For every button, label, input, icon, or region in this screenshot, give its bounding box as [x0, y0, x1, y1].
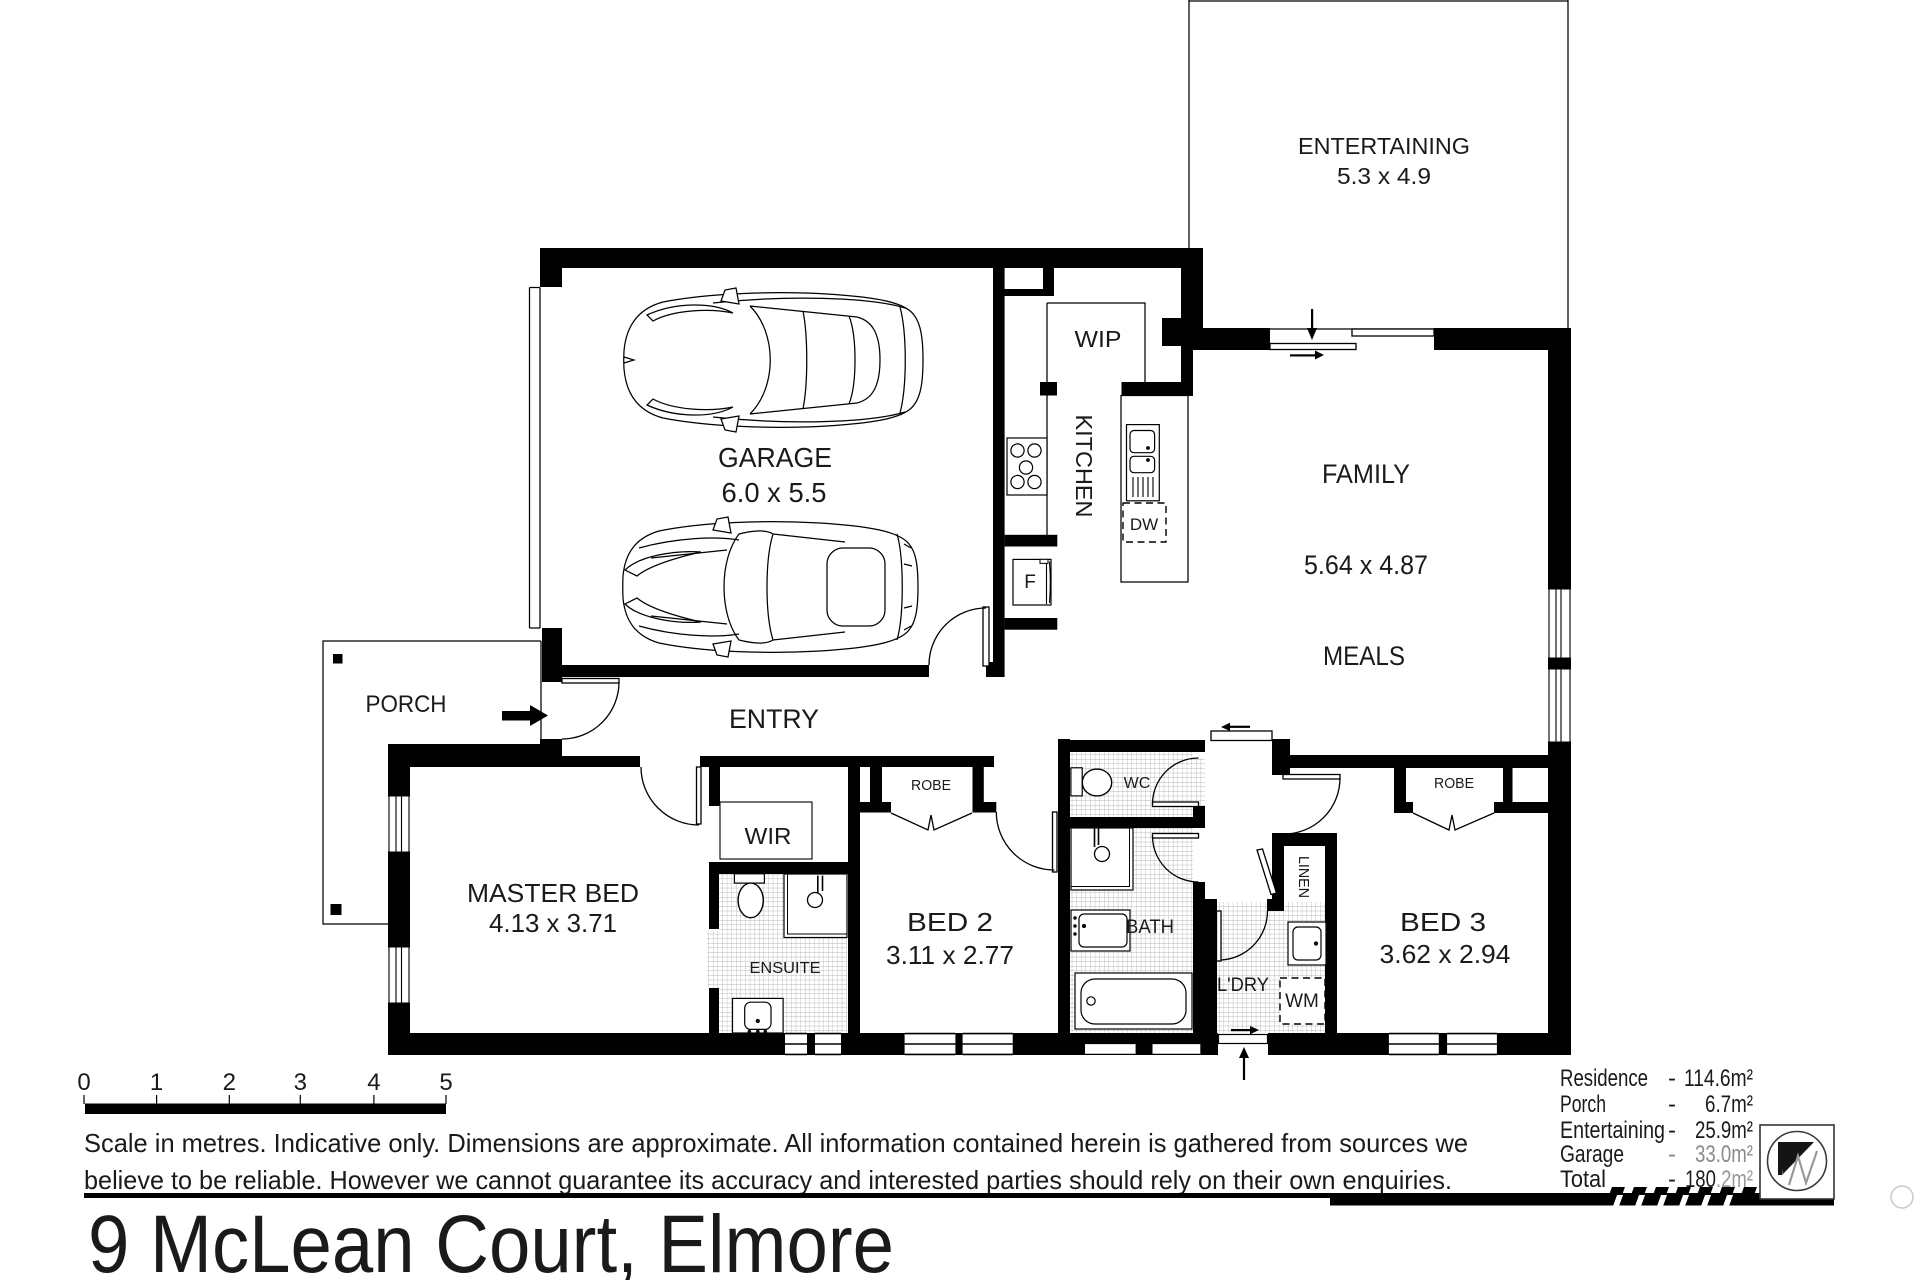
svg-text:WC: WC [1124, 775, 1151, 792]
svg-text:DW: DW [1130, 515, 1158, 534]
svg-text:KITCHEN: KITCHEN [1071, 415, 1097, 518]
svg-text:33.0m²: 33.0m² [1695, 1141, 1753, 1168]
svg-text:3.62 x 2.94: 3.62 x 2.94 [1380, 939, 1511, 969]
svg-text:LINEN: LINEN [1295, 856, 1312, 898]
svg-text:ENTRY: ENTRY [729, 704, 819, 734]
svg-text:GARAGE: GARAGE [718, 442, 832, 473]
svg-text:FAMILY: FAMILY [1322, 459, 1410, 489]
svg-text:9 McLean Court, Elmore: 9 McLean Court, Elmore [88, 1199, 894, 1280]
svg-text:F: F [1024, 572, 1036, 593]
svg-text:Garage: Garage [1560, 1141, 1624, 1168]
svg-text:PORCH: PORCH [366, 691, 447, 718]
svg-text:WIP: WIP [1075, 326, 1122, 352]
svg-text:0: 0 [77, 1069, 90, 1096]
svg-text:ENTERTAINING: ENTERTAINING [1298, 133, 1470, 159]
svg-text:believe to be reliable. Howeve: believe to be reliable. However we canno… [84, 1165, 1452, 1195]
svg-text:180.2m²: 180.2m² [1685, 1166, 1753, 1193]
svg-text:MASTER BED: MASTER BED [467, 878, 639, 908]
svg-text:2: 2 [223, 1069, 236, 1096]
svg-text:L'DRY: L'DRY [1217, 975, 1269, 996]
svg-text:BED 3: BED 3 [1400, 907, 1486, 937]
svg-text:4.13 x 3.71: 4.13 x 3.71 [489, 908, 617, 938]
svg-text:4: 4 [367, 1069, 380, 1096]
svg-text:3: 3 [294, 1069, 307, 1096]
svg-text:5.3 x 4.9: 5.3 x 4.9 [1337, 163, 1431, 189]
svg-text:WM: WM [1285, 991, 1319, 1012]
svg-text:Residence: Residence [1560, 1065, 1648, 1092]
svg-text:5.64 x 4.87: 5.64 x 4.87 [1304, 550, 1428, 580]
svg-text:-: - [1668, 1091, 1676, 1118]
svg-text:5: 5 [439, 1069, 452, 1096]
svg-text:Total: Total [1560, 1166, 1606, 1193]
svg-text:Scale in metres. Indicative on: Scale in metres. Indicative only. Dimens… [84, 1128, 1468, 1158]
svg-text:Porch: Porch [1560, 1091, 1606, 1118]
svg-text:ROBE: ROBE [911, 777, 951, 794]
svg-text:Entertaining: Entertaining [1560, 1117, 1665, 1144]
svg-text:BED 2: BED 2 [907, 907, 993, 937]
svg-text:114.6m²: 114.6m² [1684, 1065, 1753, 1092]
svg-text:-: - [1668, 1065, 1676, 1092]
svg-text:BATH: BATH [1126, 917, 1174, 938]
svg-text:25.9m²: 25.9m² [1695, 1117, 1753, 1144]
svg-text:-: - [1668, 1166, 1676, 1193]
svg-text:6.7m²: 6.7m² [1705, 1091, 1753, 1118]
svg-text:-: - [1668, 1117, 1676, 1144]
svg-text:1: 1 [150, 1069, 163, 1096]
svg-text:ROBE: ROBE [1434, 775, 1474, 792]
svg-text:WIR: WIR [745, 823, 792, 849]
svg-text:MEALS: MEALS [1323, 641, 1405, 671]
svg-text:3.11 x 2.77: 3.11 x 2.77 [886, 940, 1014, 970]
svg-text:ENSUITE: ENSUITE [750, 960, 821, 977]
svg-text:6.0 x 5.5: 6.0 x 5.5 [722, 477, 827, 508]
svg-text:-: - [1668, 1141, 1676, 1168]
